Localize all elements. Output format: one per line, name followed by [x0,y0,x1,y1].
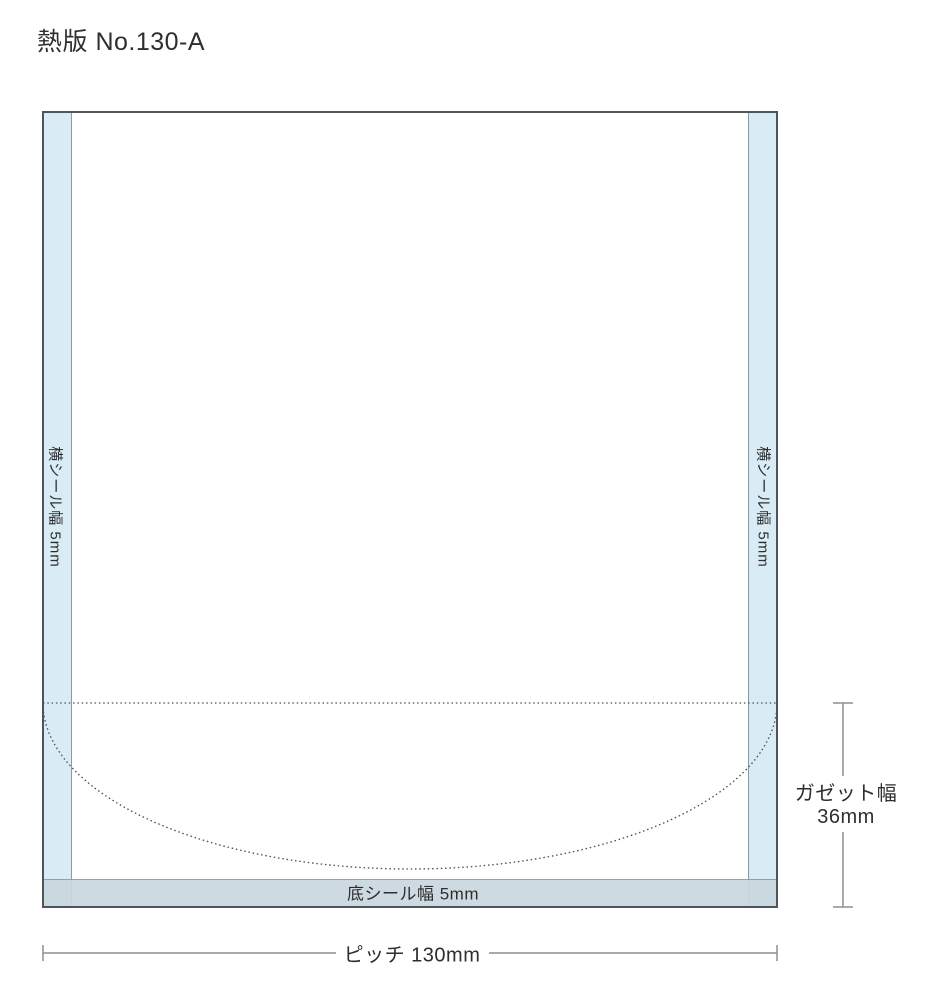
right-side-seal-label: 横シール幅 5mm [754,446,775,568]
left-side-seal-label: 横シール幅 5mm [46,446,67,568]
bag-outline [42,111,778,908]
gusset-label-value: 36mm [795,806,898,829]
pitch-dimension-label: ピッチ 130mm [344,939,481,968]
page-title: 熱版 No.130-A [37,22,205,58]
bottom-seal-label: 底シール幅 5mm [347,880,479,905]
gusset-dimension-label: ガゼット幅 36mm [795,783,898,829]
gusset-label-text: ガゼット幅 [795,783,898,806]
diagram-page: 熱版 No.130-A 横シール幅 5mm 横シール幅 5mm 底シール幅 5m… [0,0,929,1000]
